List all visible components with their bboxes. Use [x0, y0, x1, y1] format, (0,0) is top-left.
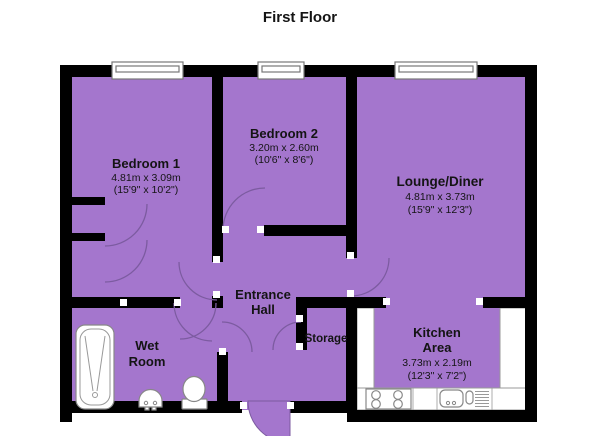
lounge-metric: 4.81m x 3.73m: [405, 191, 475, 203]
room-label-lounge: Lounge/Diner 4.81m x 3.73m (15'9" x 12'3…: [397, 174, 485, 216]
floor-plan-page: First Floor Bedroom 1 4.81m x 3.09m (15'…: [0, 0, 600, 436]
wall-bedroom2-lounge: [346, 77, 357, 232]
room-label-bedroom2: Bedroom 2 3.20m x 2.60m (10'6" x 8'6"): [249, 126, 319, 166]
bathtub: [76, 325, 114, 409]
entrance-hall-line1: Entrance: [235, 287, 291, 302]
entrance-hall-line2: Hall: [251, 302, 275, 317]
wall-exterior-bottom-right: [347, 410, 537, 422]
page-title: First Floor: [263, 9, 337, 26]
wall-lounge-kitchen: [483, 297, 525, 308]
storage-name: Storage: [305, 333, 348, 345]
kitchen-metric: 3.73m x 2.19m: [402, 357, 472, 369]
kitchen-name-line2: Area: [423, 340, 453, 355]
bedroom1-name: Bedroom 1: [112, 156, 180, 171]
kitchen-name-line1: Kitchen: [413, 325, 461, 340]
room-label-storage: Storage: [305, 333, 348, 345]
room-label-bedroom1: Bedroom 1 4.81m x 3.09m (15'9" x 10'2"): [111, 156, 181, 196]
wet-room-line2: Room: [129, 354, 166, 369]
windows: [112, 62, 477, 79]
bedroom2-metric: 3.20m x 2.60m: [249, 142, 319, 154]
wall-bedroom1-bedroom2: [212, 77, 223, 262]
bedroom1-window: [112, 62, 183, 79]
wall-exterior-right: [525, 65, 537, 422]
floor-plan: First Floor Bedroom 1 4.81m x 3.09m (15'…: [0, 0, 600, 436]
kitchen-imperial: (12'3" x 7'2"): [408, 370, 467, 382]
bedroom2-imperial: (10'6" x 8'6"): [255, 154, 314, 166]
bedroom1-metric: 4.81m x 3.09m: [111, 172, 181, 184]
entrance-door-swing: [248, 401, 290, 436]
bedroom2-window: [258, 62, 304, 79]
wall-wardrobe-stub-2: [71, 233, 105, 241]
bedroom1-imperial: (15'9" x 10'2"): [114, 184, 179, 196]
wall-bedroom2-hall: [264, 225, 357, 236]
wall-wetroom-hall: [217, 352, 228, 401]
lounge-window: [395, 62, 477, 79]
toilet: [182, 377, 207, 410]
basin: [139, 390, 162, 411]
lounge-name: Lounge/Diner: [397, 174, 485, 189]
lounge-imperial: (15'9" x 12'3"): [408, 204, 473, 216]
wall-storage-kitchen: [346, 308, 357, 410]
hob: [366, 389, 411, 409]
bedroom2-name: Bedroom 2: [250, 126, 318, 141]
wall-hall-lounge-lower-left: [296, 297, 386, 308]
wet-room-line1: Wet: [135, 338, 159, 353]
wall-wardrobe-stub-1: [71, 197, 105, 205]
wall-exterior-left: [60, 65, 72, 422]
